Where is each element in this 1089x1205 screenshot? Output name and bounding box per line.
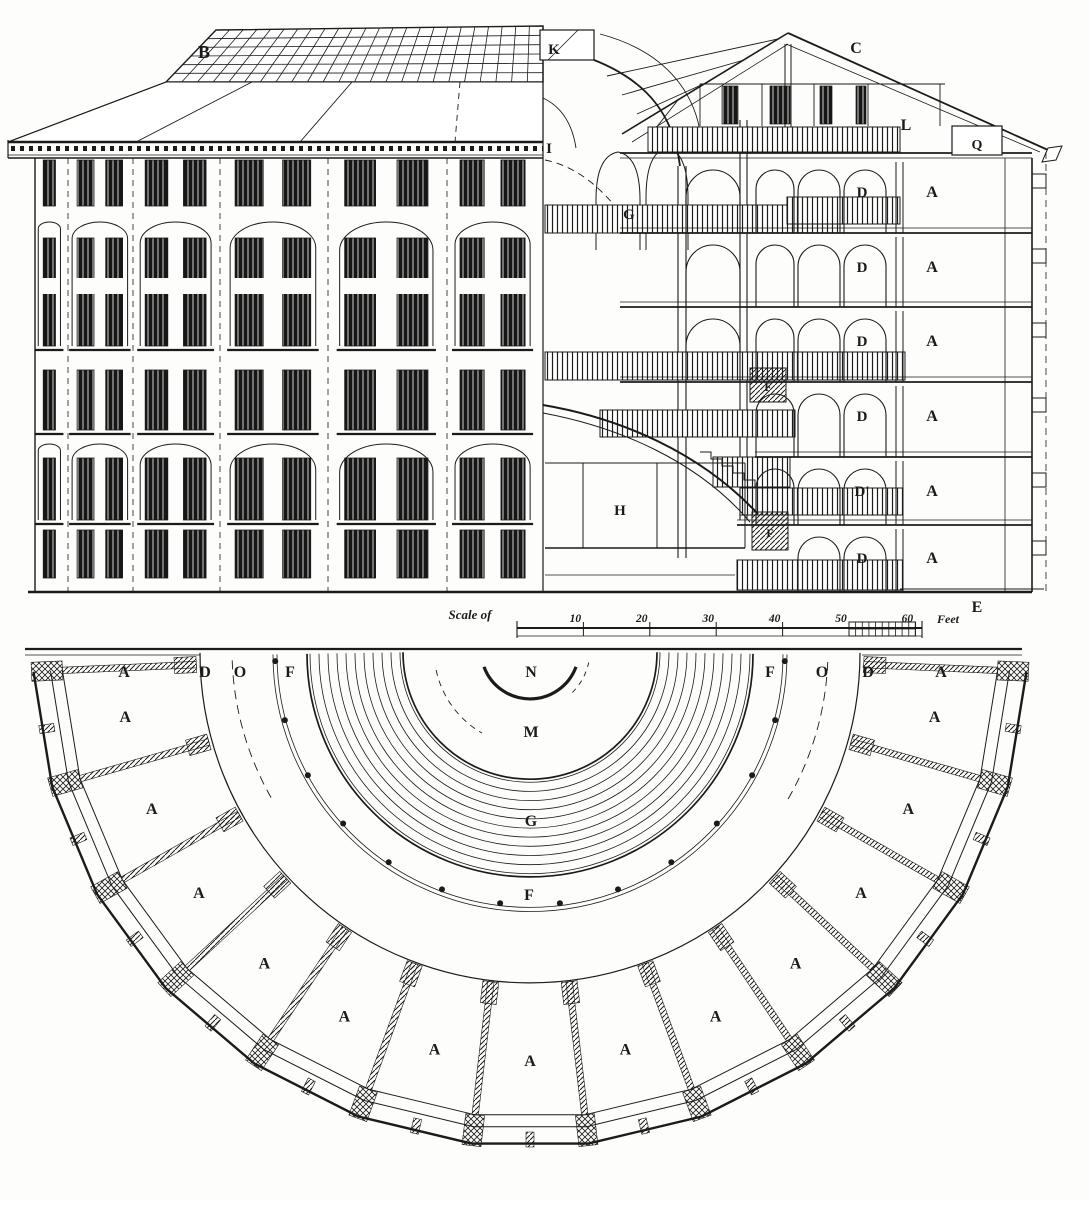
scale-prefix-label: Scale of [449,607,494,622]
label-plan-a-left: A [118,664,130,681]
facade-window [145,370,168,430]
wall-step-notch [1032,398,1046,412]
label-attic-l: L [901,117,912,134]
facade-window [183,530,206,578]
facade-window [460,370,484,430]
facade-window [106,160,123,206]
plan-cell-letter: A [790,955,802,972]
facade-window [77,530,94,578]
facade-window [397,160,428,206]
scale-bar: 102030405060 Scale of Feet [449,607,960,638]
label-plan-o-right: O [816,664,828,681]
clerestory-window [722,86,738,124]
gallery-arch [798,394,840,457]
cell-label: A [926,184,938,201]
gallery-arch [798,245,840,307]
gallery-arch [844,245,886,307]
facade-window [501,458,525,520]
f-ring-dot [305,772,311,778]
label-attic-q: Q [972,138,983,153]
engraving-stroke [740,488,903,515]
facade-window [397,370,428,430]
f-ring-dot [340,821,346,827]
facade-window [501,530,525,578]
wall-step-notch [1032,174,1046,188]
facade-window [397,530,428,578]
facade-window [283,370,311,430]
label-plan-f-right: F [765,664,775,681]
facade-window [235,370,263,430]
gallery-label: D [857,185,868,201]
label-lantern-k: K [548,42,560,58]
facade-window [183,458,206,520]
f-ring-dot [668,859,674,865]
plan-cell-letter: A [429,1042,441,1059]
engraving-stroke [737,560,903,590]
window-band [76,278,124,294]
plan-cell-letter: A [146,801,158,818]
plan-cell-wall [186,734,212,755]
plan-cell-wall [997,661,1029,681]
label-plan-a-right: A [935,664,947,681]
facade-window [460,530,484,578]
label-roof-b: B [198,42,210,62]
gallery-label: D [857,260,868,276]
label-stair-f-upper: F [764,380,771,394]
plan-cell-wall [849,734,875,755]
scale-tick-label: 30 [701,613,714,625]
tower-ring-edge [307,654,753,877]
plan-cell-wall [174,657,197,674]
facade-window [43,160,55,206]
engraving-stroke [600,410,795,437]
o-annulus-dash [232,660,272,799]
facade-window [43,530,55,578]
facade-window [145,530,168,578]
label-plan-d-left: D [199,664,211,681]
label-plan-n: N [525,664,537,681]
label-skylight-i: I [546,141,552,157]
facade-window [235,458,263,520]
wall-step-notch [1032,249,1046,263]
engraving-stroke [648,127,900,152]
f-ring-dot [272,658,278,664]
f-ring-dot [615,886,621,892]
skylight-glass-arc [545,160,618,210]
gallery-label: D [857,551,868,567]
cell-label: A [926,483,938,500]
f-ring-dot [772,717,778,723]
clerestory-window [856,86,866,124]
label-plan-f-left: F [285,664,295,681]
scale-tick-label: 20 [635,613,648,625]
label-foundation-e: E [972,599,983,616]
facade-window [460,458,484,520]
facade-window [145,160,168,206]
facade-window [345,458,376,520]
label-well-g: G [623,207,635,223]
cell-label: A [926,333,938,350]
wall-step-notch [1032,473,1046,487]
clerestory-window [770,86,790,124]
scale-unit-label: Feet [936,612,960,626]
f-ring-dot [557,900,563,906]
label-plan-o-left: O [234,664,246,681]
elevation-view [8,26,543,592]
facade-window [145,458,168,520]
facade-window [235,160,263,206]
engraving-stroke [545,352,905,380]
cell-front-wall [896,386,903,457]
hall-pointed-arch [646,148,688,250]
plan-cell-letter: A [193,885,205,902]
plan-cell-letter: A [120,709,132,726]
window-band [144,278,207,294]
hall-pointed-arch [596,152,640,250]
facade-window [183,160,206,206]
plan-cell-letter: A [855,885,867,902]
window-band [344,278,429,294]
plan-cell-wall [31,661,63,681]
gallery-label: D' [855,484,870,500]
facade-window [501,370,525,430]
plan-cell-letter: A [524,1053,536,1070]
facade-window [106,530,123,578]
f-ring-dot [386,859,392,865]
facade-window [77,370,94,430]
gallery-label: D [857,334,868,350]
label-plan-m: M [523,724,538,741]
plan-cell-letter: A [929,709,941,726]
window-band [459,278,526,294]
label-hall-h: H [614,503,626,519]
plan-cell-wall [349,1086,378,1122]
facade-window [283,160,311,206]
label-plan-f-center: F [524,887,534,904]
facade-window [345,160,376,206]
cell-label: A [926,259,938,276]
label-plan-g: G [525,813,538,830]
facade-window [77,160,94,206]
roof-rafters [607,39,778,133]
scale-tick-label: 50 [835,613,847,625]
plan-cell-letter: A [620,1042,632,1059]
scale-tick-label: 60 [902,613,914,625]
facade-window [43,458,55,520]
tower-ring [319,654,741,865]
cell-front-wall [896,237,903,307]
facade-windows [35,160,533,578]
label-roof-c: C [850,40,862,57]
plan-cell-wall [638,961,661,987]
engraving-plate: 102030405060 Scale of Feet AAAAAAAAAAAAA… [0,0,1089,1200]
gallery-label: D [857,409,868,425]
plan-cell-wall [977,770,1012,797]
cell-label: A [926,408,938,425]
plan-cell-letter: A [259,955,271,972]
facade-window [183,370,206,430]
gallery-arch [844,394,886,457]
plan-cell-wall [480,981,498,1005]
tower-ring [310,654,750,874]
facade-window [235,530,263,578]
plan-cell-wall [561,981,579,1005]
facade-window [397,458,428,520]
facade-window [283,458,311,520]
wall-step-notch [1032,541,1046,555]
f-ring-dot [714,821,720,827]
gallery-arch [756,245,794,307]
label-stair-f-lower: F [766,526,773,540]
facade-window [501,160,525,206]
scale-tick-label: 40 [768,613,781,625]
facade-window [345,370,376,430]
facade-window [283,530,311,578]
f-ring-dot [439,886,445,892]
plan-cell-wall [48,770,83,797]
panopticon-drawing: 102030405060 Scale of Feet AAAAAAAAAAAAA… [0,0,1089,1200]
plan-cell-letter: A [710,1009,722,1026]
f-ring [277,654,783,907]
o-annulus-dash [788,660,828,799]
window-band [42,278,56,294]
facade-window [345,530,376,578]
scale-ticks: 102030405060 [570,613,916,636]
facade-window [106,458,123,520]
facade-window [77,458,94,520]
facade-window [460,160,484,206]
plan-cell-letter: A [902,801,914,818]
plan-cell-wall [683,1086,712,1122]
facade-window [106,370,123,430]
label-plan-d-right: D [862,664,874,681]
scale-tick-label: 10 [570,613,582,625]
m-zone-dash-arc [436,670,482,733]
gallery-balustrades [545,127,905,590]
f-ring-dot [497,900,503,906]
plan-cell-letter: A [339,1009,351,1026]
f-ring-dot [749,772,755,778]
plan-cell-wall [400,961,423,987]
clerestory-window [820,86,832,124]
f-ring-dot [782,658,788,664]
cornice-dentils [10,145,543,154]
gallery-arch [686,245,740,307]
facade-window [43,370,55,430]
cell-label: A [926,550,938,567]
wall-step-notch [1032,323,1046,337]
window-band [234,278,312,294]
f-ring-dot [282,717,288,723]
